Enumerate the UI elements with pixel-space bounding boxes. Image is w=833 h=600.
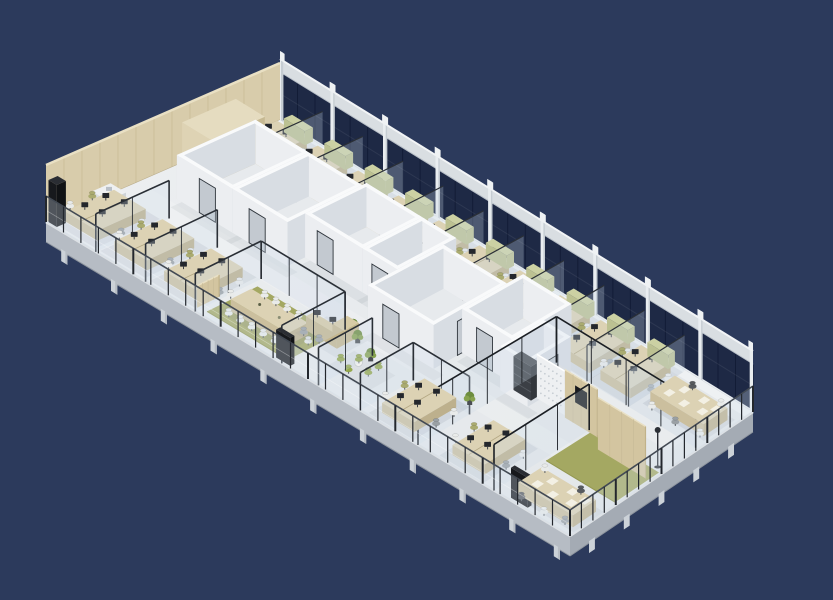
office-floorplan-3d-scene [0,0,833,600]
render-viewport [0,0,833,600]
